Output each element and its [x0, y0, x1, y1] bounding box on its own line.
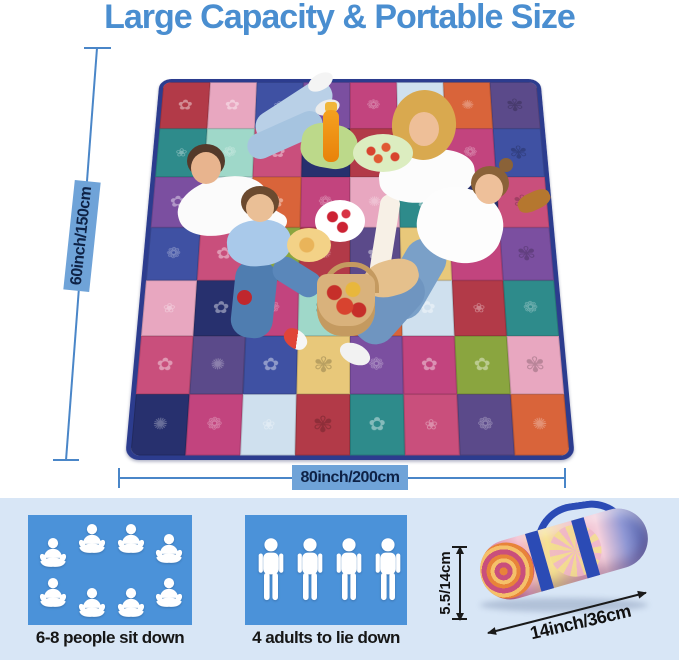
product-infographic: Large Capacity & Portable Size [0, 0, 679, 660]
standing-person-icon [335, 524, 363, 616]
blanket-photo [125, 48, 565, 460]
height-dimension-label: 60inch/150cm [63, 180, 100, 292]
fruit-basket [317, 274, 375, 336]
girl-sandal [515, 186, 553, 217]
sitting-person-icon [75, 587, 109, 620]
capacity-panel: 6-8 people sit down 4 adults to lie down… [0, 498, 679, 660]
height-dimension-cap-bottom [53, 459, 79, 461]
photo-overlay [125, 48, 565, 460]
page-title: Large Capacity & Portable Size [0, 0, 679, 37]
sitting-person-icon [114, 523, 148, 556]
juice-bottle [323, 110, 339, 162]
sit-caption: 6-8 people sit down [20, 628, 200, 648]
girl-hair-bun [499, 158, 513, 172]
standing-person-icon [257, 524, 285, 616]
dad-head [191, 152, 221, 184]
height-dimension-cap-top [84, 47, 111, 49]
girl-head [475, 174, 503, 204]
sitting-person-icon [114, 587, 148, 620]
roll-diameter-tick-bottom [452, 618, 467, 620]
lie-caption: 4 adults to lie down [240, 628, 412, 648]
apple [237, 290, 252, 305]
boy-head [246, 194, 274, 222]
sitting-person-icon [152, 577, 186, 610]
width-dimension-cap-right [564, 468, 566, 488]
standing-person-icon [296, 524, 324, 616]
standing-person-icon [374, 524, 402, 616]
lie-capacity-box [245, 515, 407, 625]
mom-head [409, 112, 439, 146]
boy-shoe [280, 324, 311, 354]
sitting-person-icon [36, 577, 70, 610]
snack-plate [287, 228, 331, 262]
fruit-plate [353, 134, 413, 172]
width-dimension-cap-left [118, 468, 120, 488]
roll-diameter-label: 5.5/14cm [437, 544, 453, 622]
sit-capacity-box [28, 515, 192, 625]
sitting-person-icon [36, 537, 70, 570]
roll-diameter-tick-top [452, 546, 467, 548]
sitting-person-icon [152, 533, 186, 566]
roll-diameter-arrow [459, 547, 461, 620]
sitting-person-icon [75, 523, 109, 556]
width-dimension-label: 80inch/200cm [292, 465, 408, 490]
